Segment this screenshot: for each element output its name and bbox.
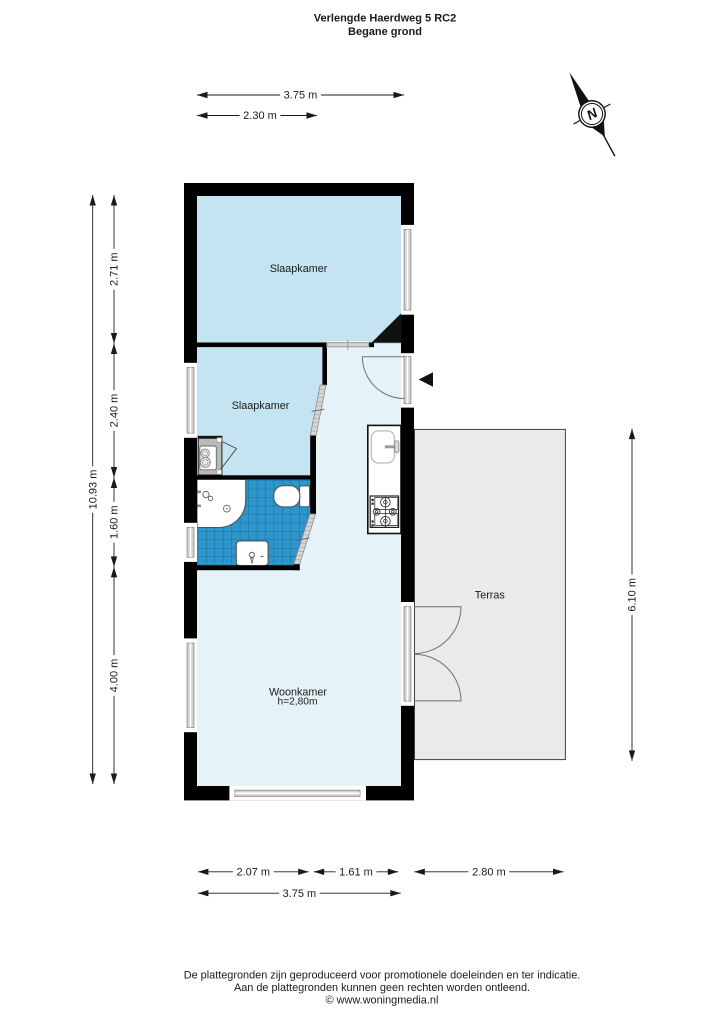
svg-text:Verlengde Haerdweg 5 RC2: Verlengde Haerdweg 5 RC2 — [314, 13, 456, 25]
svg-text:h=2,80m: h=2,80m — [278, 697, 318, 708]
svg-text:Aan de plattegronden kunnen ge: Aan de plattegronden kunnen geen rechten… — [234, 982, 530, 994]
svg-text:Slaapkamer: Slaapkamer — [232, 400, 290, 412]
svg-text:2.30 m: 2.30 m — [243, 110, 277, 122]
svg-text:Begane grond: Begane grond — [348, 26, 422, 38]
svg-text:Slaapkamer: Slaapkamer — [270, 263, 328, 275]
svg-text:3.75 m: 3.75 m — [284, 90, 318, 102]
svg-text:De plattegronden zijn geproduc: De plattegronden zijn geproduceerd voor … — [184, 970, 581, 982]
svg-text:4.00 m: 4.00 m — [109, 659, 121, 693]
svg-text:© www.woningmedia.nl: © www.woningmedia.nl — [326, 994, 439, 1006]
svg-text:2.71 m: 2.71 m — [109, 252, 121, 286]
svg-text:Terras: Terras — [475, 590, 506, 602]
svg-text:10.93 m: 10.93 m — [87, 470, 99, 510]
svg-text:2.80 m: 2.80 m — [472, 867, 506, 879]
svg-text:1.60 m: 1.60 m — [109, 505, 121, 539]
svg-text:2.07 m: 2.07 m — [236, 867, 270, 879]
svg-text:6.10 m: 6.10 m — [627, 578, 639, 612]
svg-text:3.75 m: 3.75 m — [283, 888, 317, 900]
svg-text:1.61 m: 1.61 m — [339, 867, 373, 879]
svg-text:2.40 m: 2.40 m — [109, 394, 121, 428]
